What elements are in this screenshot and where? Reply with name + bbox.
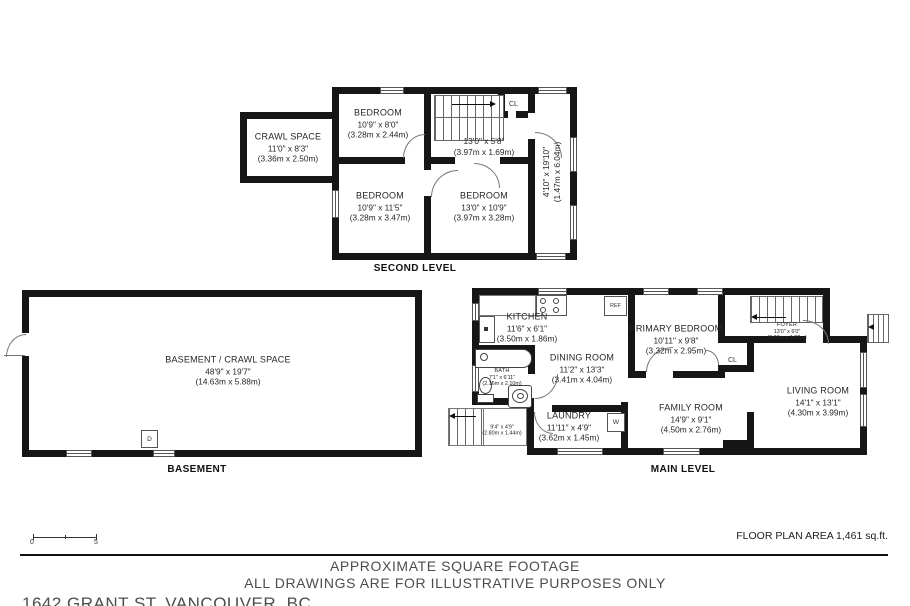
room-name: BATH xyxy=(482,368,521,375)
tub-drain-icon xyxy=(480,353,488,361)
room-name: LIVING ROOM xyxy=(787,385,849,397)
scale-zero-label: 0 xyxy=(30,539,34,546)
wall xyxy=(527,405,534,455)
arrow-left-icon xyxy=(751,314,757,320)
window xyxy=(570,137,577,172)
window xyxy=(66,450,92,457)
room-dims-metric: (1.47m x 6.04m) xyxy=(552,142,563,202)
wall xyxy=(528,139,535,253)
window xyxy=(860,394,867,427)
room-name: BEDROOM xyxy=(454,190,514,202)
room-dims-imperial: 14'1" x 13'1" xyxy=(787,397,849,408)
window xyxy=(472,303,479,321)
room-name: CRAWL SPACE xyxy=(255,131,321,143)
room-dims-metric: (3.50m x 1.86m) xyxy=(497,334,557,345)
refrigerator-box: REF xyxy=(604,296,627,316)
wall xyxy=(415,290,422,457)
room-label-ext-stairs: 9'4" x 4'9" (2.80m x 1.44m) xyxy=(482,425,521,438)
wall xyxy=(424,196,431,253)
level-title-basement: BASEMENT xyxy=(167,464,226,475)
window xyxy=(153,450,175,457)
room-dims-metric: (3.28m x 3.47m) xyxy=(350,213,410,224)
room-dims-metric: (3.28m x 2.44m) xyxy=(348,130,408,141)
level-title-main: MAIN LEVEL xyxy=(651,464,716,475)
room-label-kitchen: KITCHEN 11'6" x 6'1" (3.50m x 1.86m) xyxy=(497,311,557,344)
room-dims-metric: (2.80m x 1.44m) xyxy=(482,431,521,437)
room-label-primary-bedroom: PRIMARY BEDROOM 10'11" x 9'8" (3.32m x 2… xyxy=(630,323,723,356)
property-address: 1642 GRANT ST, VANCOUVER, BC xyxy=(22,594,311,606)
room-label-crawl-space: CRAWL SPACE 11'0" x 8'3" (3.36m x 2.50m) xyxy=(255,131,321,164)
room-dims-metric: (4.30m x 3.99m) xyxy=(787,408,849,419)
wall xyxy=(240,176,339,183)
window xyxy=(538,288,567,295)
window xyxy=(380,87,404,94)
divider-line xyxy=(20,554,888,556)
window xyxy=(536,253,566,260)
window xyxy=(332,190,339,218)
door-marker-box: D xyxy=(141,430,158,448)
stair-direction-line xyxy=(454,416,476,417)
room-dims-metric: (3.97m x 1.82m) xyxy=(767,335,806,341)
window xyxy=(472,365,479,392)
burner-icon xyxy=(553,298,559,304)
window xyxy=(538,87,567,94)
room-dims-imperial: 13'0" x 5'8" xyxy=(454,136,514,147)
arrow-right-icon xyxy=(490,101,496,107)
wall xyxy=(725,336,747,343)
room-label-bedroom-top: BEDROOM 10'9" x 8'0" (3.28m x 2.44m) xyxy=(348,107,408,140)
wall xyxy=(22,290,422,297)
closet-label: CL xyxy=(509,101,518,108)
window xyxy=(697,288,723,295)
room-dims-metric: (2.16m x 2.10m) xyxy=(482,381,521,387)
window xyxy=(643,288,669,295)
room-dims-metric: (3.97m x 1.69m) xyxy=(454,147,514,158)
wall xyxy=(628,371,646,378)
room-label-basement: BASEMENT / CRAWL SPACE 48'9" x 19'7" (14… xyxy=(165,354,290,387)
sink-drain-icon xyxy=(484,327,488,331)
wall xyxy=(22,356,29,457)
room-name: KITCHEN xyxy=(497,311,557,323)
room-dims-metric: (3.32m x 2.95m) xyxy=(630,346,723,357)
room-label-side-room: 4'10" x 19'10" (1.47m x 6.04m) xyxy=(541,142,563,202)
room-label-dining: DINING ROOM 11'2" x 13'3" (3.41m x 4.04m… xyxy=(550,352,614,385)
room-dims-imperial: 10'9" x 8'0" xyxy=(348,119,408,130)
disclaimer-line2: ALL DRAWINGS ARE FOR ILLUSTRATIVE PURPOS… xyxy=(244,575,666,591)
room-name: LAUNDRY xyxy=(539,410,599,422)
wall xyxy=(339,157,405,164)
stair-landing-line xyxy=(434,117,504,118)
wall xyxy=(500,157,528,164)
room-label-bedroom-right: BEDROOM 13'0" x 10'9" (3.97m x 3.28m) xyxy=(454,190,514,223)
wall xyxy=(516,111,528,118)
door-arc xyxy=(474,163,500,188)
room-dims-metric: (4.50m x 2.76m) xyxy=(659,425,723,436)
room-dims-imperial: 4'10" x 19'10" xyxy=(541,142,552,202)
room-dims-metric: (3.97m x 3.28m) xyxy=(454,213,514,224)
room-dims-metric: (3.62m x 1.45m) xyxy=(539,433,599,444)
room-name: FAMILY ROOM xyxy=(659,402,723,414)
room-label-hall: 13'0" x 5'8" (3.97m x 1.69m) xyxy=(454,136,514,158)
room-name: BEDROOM xyxy=(348,107,408,119)
room-dims-imperial: 14'9" x 9'1" xyxy=(659,414,723,425)
window xyxy=(663,448,700,455)
scale-five-label: 5 xyxy=(94,539,98,546)
room-name: FOYER xyxy=(767,322,806,329)
floor-plan-page: CRAWL SPACE 11'0" x 8'3" (3.36m x 2.50m)… xyxy=(0,0,910,606)
room-dims-imperial: 10'9" x 11'5" xyxy=(350,202,410,213)
wall xyxy=(673,371,725,378)
door-arc xyxy=(6,334,26,357)
wall xyxy=(240,112,247,183)
room-name: BEDROOM xyxy=(350,190,410,202)
room-dims-imperial: 11'11" x 4'9" xyxy=(539,422,599,433)
room-dims-imperial: 48'9" x 19'7" xyxy=(165,366,290,377)
wall xyxy=(22,290,29,333)
room-dims-imperial: 11'0" x 8'3" xyxy=(255,143,321,154)
level-title-second: SECOND LEVEL xyxy=(374,263,457,274)
room-label-family: FAMILY ROOM 14'9" x 9'1" (4.50m x 2.76m) xyxy=(659,402,723,435)
window xyxy=(860,352,867,388)
staircase xyxy=(750,296,823,323)
bath-sink-drain-icon xyxy=(517,393,524,399)
room-label-bedroom-left: BEDROOM 10'9" x 11'5" (3.28m x 3.47m) xyxy=(350,190,410,223)
toilet-tank-icon xyxy=(477,394,494,403)
room-dims-metric: (14.63m x 5.88m) xyxy=(165,377,290,388)
room-label-living: LIVING ROOM 14'1" x 13'1" (4.30m x 3.99m… xyxy=(787,385,849,418)
room-dims-imperial: 13'0" x 10'9" xyxy=(454,202,514,213)
room-name: PRIMARY BEDROOM xyxy=(630,323,723,335)
room-label-bath: BATH 7'1" x 6'11" (2.16m x 2.10m) xyxy=(482,368,521,388)
room-dims-metric: (3.41m x 4.04m) xyxy=(550,375,614,386)
room-label-foyer: FOYER 13'0" x 6'0" (3.97m x 1.82m) xyxy=(767,322,806,342)
door-leaf xyxy=(4,355,25,356)
room-dims-imperial: 10'11" x 9'8" xyxy=(630,335,723,346)
wall xyxy=(528,94,535,113)
fireplace-block xyxy=(723,440,753,455)
room-name: DINING ROOM xyxy=(550,352,614,364)
stair-direction-line xyxy=(452,104,490,105)
wall xyxy=(424,157,431,170)
room-dims-imperial: 11'6" x 6'1" xyxy=(497,323,557,334)
window xyxy=(570,205,577,240)
disclaimer-line1: APPROXIMATE SQUARE FOOTAGE xyxy=(330,558,580,574)
wall xyxy=(431,157,455,164)
scale-tick xyxy=(65,535,66,539)
burner-icon xyxy=(540,298,546,304)
wall xyxy=(747,336,754,372)
window xyxy=(557,448,603,455)
stair-direction-line xyxy=(756,317,786,318)
room-dims-imperial: 11'2" x 13'3" xyxy=(550,364,614,375)
wall xyxy=(424,94,431,157)
wall xyxy=(240,112,339,119)
room-label-laundry: LAUNDRY 11'11" x 4'9" (3.62m x 1.45m) xyxy=(539,410,599,443)
room-dims-metric: (3.36m x 2.50m) xyxy=(255,154,321,165)
floor-plan-area-label: FLOOR PLAN AREA 1,461 sq.ft. xyxy=(736,530,888,542)
arrow-left-icon xyxy=(868,324,874,330)
washer-box: W xyxy=(607,413,625,432)
arrow-left-icon xyxy=(449,413,455,419)
room-name: BASEMENT / CRAWL SPACE xyxy=(165,354,290,366)
closet-label: CL xyxy=(728,357,737,364)
